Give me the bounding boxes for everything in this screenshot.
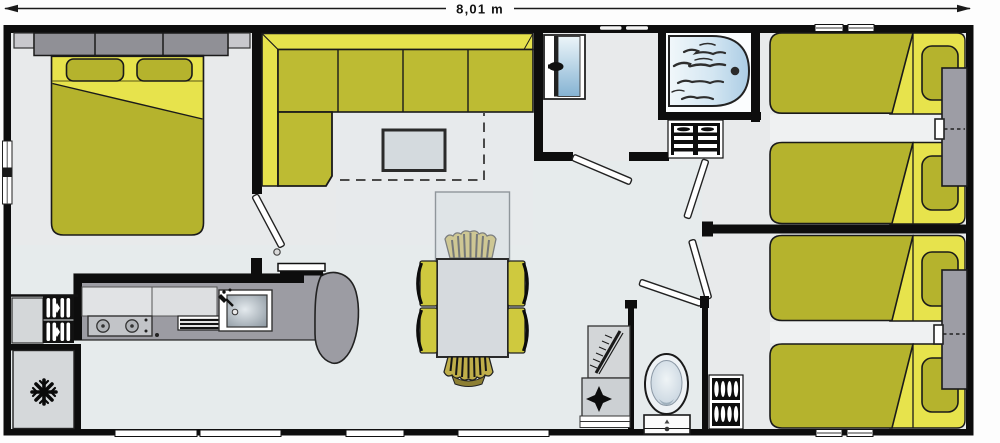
svg-text:8,01 m: 8,01 m (456, 2, 504, 17)
